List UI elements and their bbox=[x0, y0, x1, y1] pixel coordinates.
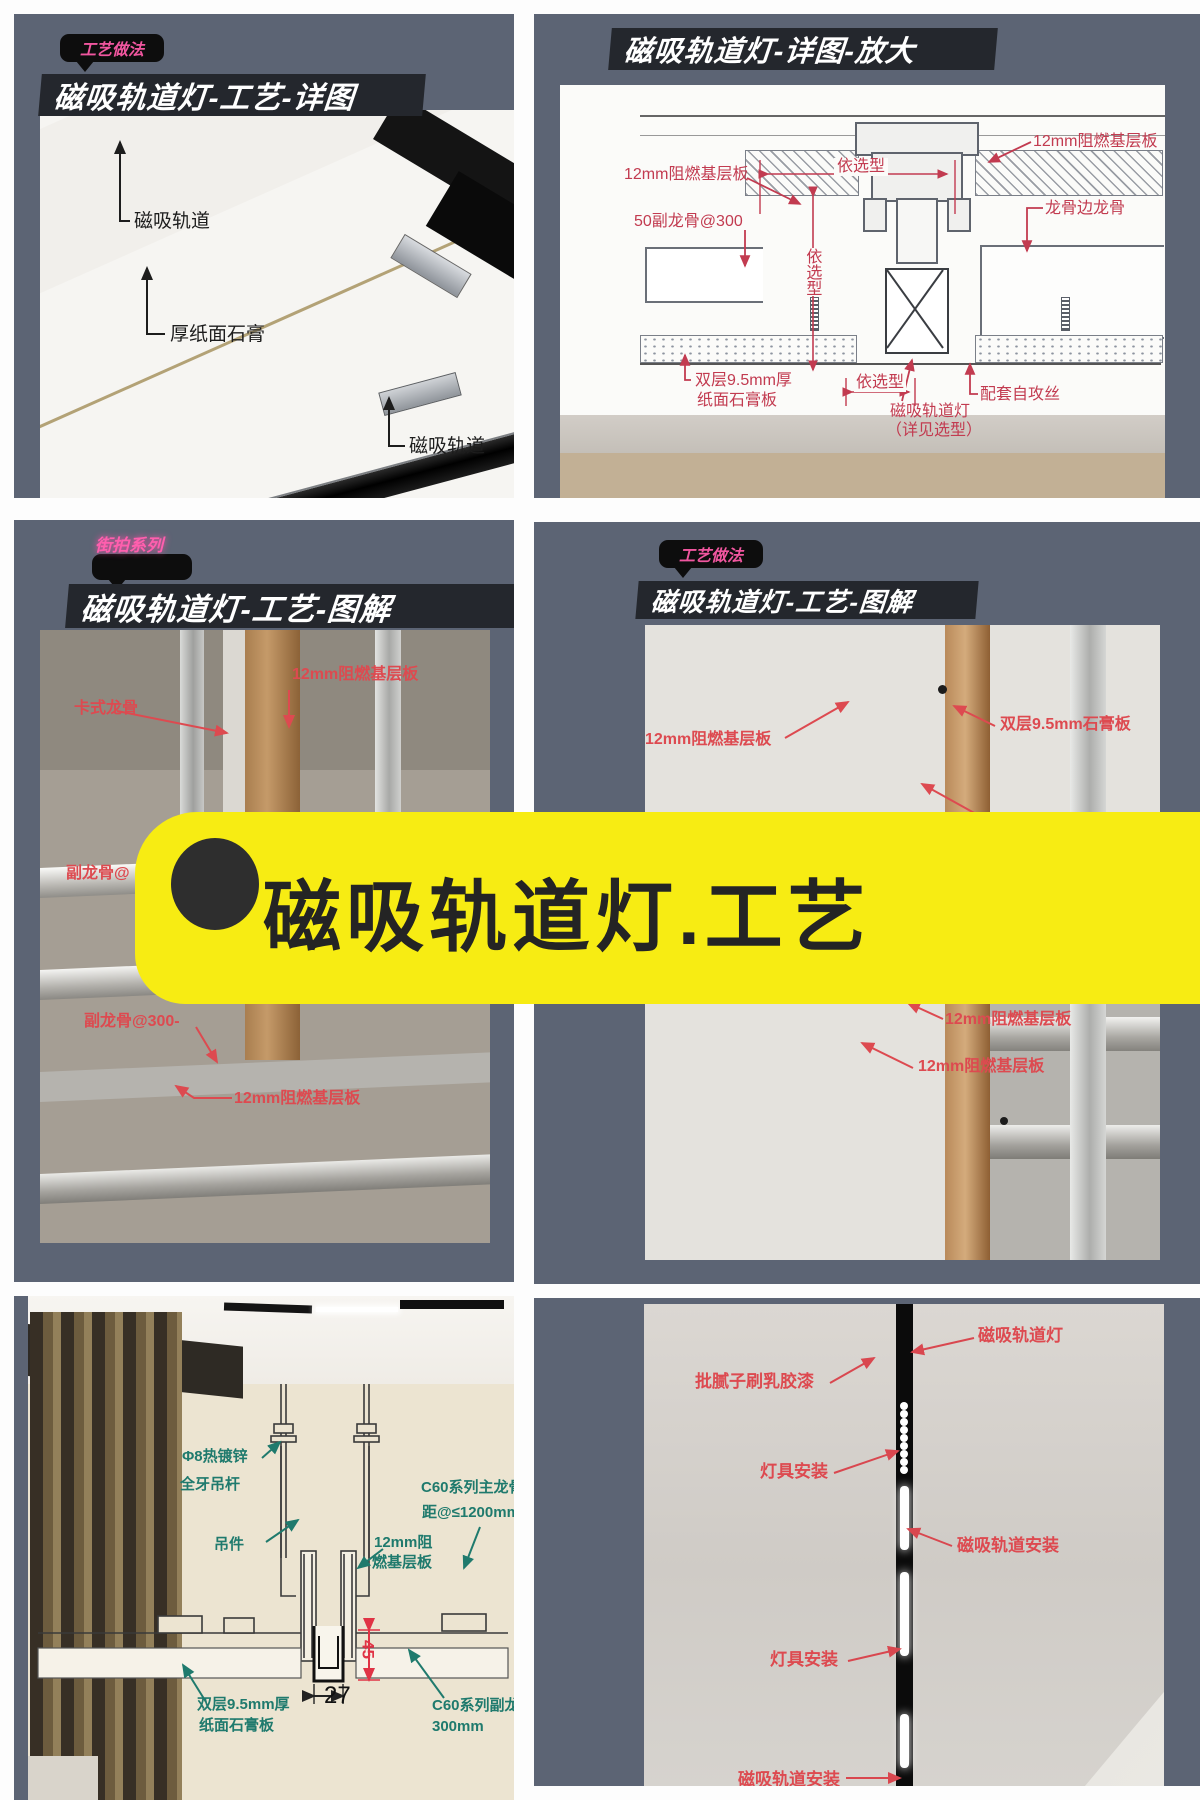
sub-keel-channel bbox=[645, 247, 763, 303]
tag-street-series: 街拍系列 bbox=[95, 536, 163, 556]
label-putty-paint: 批腻子刷乳胶漆 bbox=[695, 1372, 814, 1392]
tag-craft-method-label: 工艺做法 bbox=[80, 36, 144, 60]
profile-top-flange bbox=[855, 122, 979, 156]
label-gypsum-1: 双层9.5mm厚 bbox=[695, 372, 792, 390]
hanger-channel-right bbox=[375, 630, 401, 825]
label-sub-keel-2: 300mm bbox=[432, 1718, 484, 1735]
label-rod-1: Φ8热镀锌 bbox=[182, 1448, 248, 1465]
label-base-left: 12mm阻燃基层板 bbox=[624, 166, 748, 184]
label-fixture-1: 灯具安装 bbox=[760, 1462, 828, 1482]
profile-arm-right bbox=[947, 198, 971, 232]
label-dim-vert: 依选型 bbox=[802, 248, 820, 296]
label-gypsum: 厚纸面石膏 bbox=[170, 324, 265, 346]
panel-detail-enlarged: 磁吸轨道灯-详图-放大 12mm阻燃基层板 50副龙骨@300 双层9.5mm厚 bbox=[534, 14, 1200, 498]
hanger-channel-left bbox=[180, 630, 204, 815]
base-board-right bbox=[975, 150, 1163, 196]
label-base-center-p4: 12mm阻燃基层板 bbox=[918, 1058, 1044, 1076]
label-sub-keel-a: 副龙骨@ bbox=[66, 865, 130, 883]
edge-keel-channel bbox=[980, 245, 1164, 339]
tag-bubble-p3 bbox=[92, 554, 192, 580]
label-main-keel-1: C60系列主龙骨间 bbox=[421, 1479, 514, 1496]
profile-stem bbox=[896, 198, 938, 264]
panel-section-room: Φ8热镀锌 全牙吊杆 吊件 12mm阻 燃基层板 C60系列主龙骨间 距@≤12… bbox=[14, 1296, 514, 1800]
poster-page: 工艺做法 磁吸轨道灯-工艺-详图 磁吸轨道 厚纸面石膏 磁吸轨道 bbox=[0, 0, 1200, 1800]
ceiling-line bbox=[640, 115, 1165, 117]
label-base-top: 12mm阻燃基层板 bbox=[292, 666, 418, 684]
keel-strip-4 bbox=[40, 1153, 490, 1205]
label-base-left-p4: 12mm阻燃基层板 bbox=[645, 731, 771, 749]
label-fixture-2: 灯具安装 bbox=[770, 1650, 838, 1670]
label-gyp-2: 纸面石膏板 bbox=[199, 1717, 274, 1734]
track-plate-silver bbox=[378, 372, 461, 416]
label-main-keel-2: 距@≤1200mm bbox=[422, 1504, 514, 1521]
room-section-photo: Φ8热镀锌 全牙吊杆 吊件 12mm阻 燃基层板 C60系列主龙骨间 距@≤12… bbox=[28, 1296, 514, 1800]
tag-pointer bbox=[76, 61, 94, 72]
wall-diagonal-light bbox=[944, 1632, 1164, 1786]
track-segment-lit bbox=[316, 1307, 398, 1312]
panel3-title: 磁吸轨道灯-工艺-图解 bbox=[79, 584, 394, 629]
label-track-light: 磁吸轨道灯 bbox=[978, 1326, 1063, 1346]
label-sub-keel-1: C60系列副龙骨间距@≤ bbox=[432, 1697, 514, 1714]
label-track-top: 磁吸轨道 bbox=[134, 211, 210, 233]
panel2-title-bar: 磁吸轨道灯-详图-放大 bbox=[608, 28, 998, 70]
track-black-vertical bbox=[896, 1304, 913, 1786]
gypsum-band-right bbox=[975, 335, 1163, 363]
banner-dot-icon bbox=[171, 838, 259, 930]
label-track-1: 磁吸轨道灯 bbox=[890, 403, 970, 421]
tag-craft-method: 工艺做法 bbox=[60, 34, 164, 62]
tag-craft-method-p4: 工艺做法 bbox=[679, 542, 743, 566]
label-gypsum-p4: 双层9.5mm石膏板 bbox=[1000, 716, 1131, 734]
label-edge-keel: 龙骨边龙骨 bbox=[1045, 200, 1125, 218]
banner-title: 磁吸轨道灯.工艺 bbox=[263, 849, 871, 967]
label-board-1: 12mm阻 bbox=[374, 1534, 432, 1551]
panel5-left-border bbox=[14, 1296, 28, 1800]
label-base-bottom: 12mm阻燃基层板 bbox=[234, 1090, 360, 1108]
label-dim-bottom: 依选型 bbox=[854, 374, 906, 392]
label-dim-top: 依选型 bbox=[834, 158, 888, 176]
label-dim-45: 45 bbox=[358, 1640, 378, 1659]
screw-dot-3 bbox=[1000, 1117, 1008, 1125]
panel2-title: 磁吸轨道灯-详图-放大 bbox=[622, 28, 917, 70]
screw-right bbox=[1061, 297, 1070, 331]
wood-floor-strip bbox=[560, 453, 1165, 498]
panel1-title-bar: 磁吸轨道灯-工艺-详图 bbox=[38, 74, 426, 116]
track-segment-dark2 bbox=[400, 1300, 504, 1309]
room-wall-strip bbox=[560, 415, 1165, 453]
label-track-2: （详见选型） bbox=[886, 422, 982, 440]
floor-light-corner bbox=[28, 1756, 98, 1800]
tag-bubble-p4: 工艺做法 bbox=[659, 540, 763, 568]
label-sub-keel: 50副龙骨@300 bbox=[634, 213, 743, 231]
gypsum-underline bbox=[640, 363, 1161, 365]
panel4-title-bar: 磁吸轨道灯-工艺-图解 bbox=[635, 581, 978, 619]
label-sub-keel-b: 副龙骨@300- bbox=[84, 1013, 180, 1031]
curtain bbox=[30, 1312, 182, 1800]
screw-dot-1 bbox=[938, 685, 947, 694]
label-screw: 配套自攻丝 bbox=[980, 386, 1060, 404]
gypsum-band-left bbox=[640, 335, 857, 363]
label-gyp-1: 双层9.5mm厚 bbox=[197, 1696, 290, 1713]
track-light-box bbox=[885, 268, 949, 354]
label-rod-2: 全牙吊杆 bbox=[180, 1476, 240, 1493]
label-dim-27: 27 bbox=[324, 1682, 351, 1710]
panel-track-install-photo: 磁吸轨道灯 批腻子刷乳胶漆 灯具安装 磁吸轨道安装 灯具安装 磁吸轨道安装 bbox=[534, 1298, 1200, 1786]
label-base-right: 12mm阻燃基层板 bbox=[1033, 133, 1157, 151]
center-banner: 磁吸轨道灯.工艺 bbox=[135, 812, 1200, 1004]
label-gypsum-2: 纸面石膏板 bbox=[697, 392, 777, 410]
panel1-title: 磁吸轨道灯-工艺-详图 bbox=[52, 73, 357, 117]
panel-craft-detail: 工艺做法 磁吸轨道灯-工艺-详图 磁吸轨道 厚纸面石膏 磁吸轨道 bbox=[14, 14, 514, 498]
label-hanger: 吊件 bbox=[214, 1536, 244, 1553]
panel4-title: 磁吸轨道灯-工艺-图解 bbox=[649, 582, 915, 619]
profile-arm-left bbox=[863, 198, 887, 232]
label-base-right-p4: 12mm阻燃基层板 bbox=[945, 1011, 1071, 1029]
label-track-install-2: 磁吸轨道安装 bbox=[738, 1770, 840, 1786]
label-card-keel: 卡式龙骨 bbox=[74, 700, 138, 718]
panel3-title-bar: 磁吸轨道灯-工艺-图解 bbox=[65, 584, 514, 628]
screw-left bbox=[810, 297, 819, 331]
label-board-2: 燃基层板 bbox=[372, 1554, 432, 1571]
label-track-install-1: 磁吸轨道安装 bbox=[957, 1536, 1059, 1556]
label-track-bottom: 磁吸轨道 bbox=[409, 436, 485, 458]
tag-pointer-p4 bbox=[674, 567, 692, 578]
